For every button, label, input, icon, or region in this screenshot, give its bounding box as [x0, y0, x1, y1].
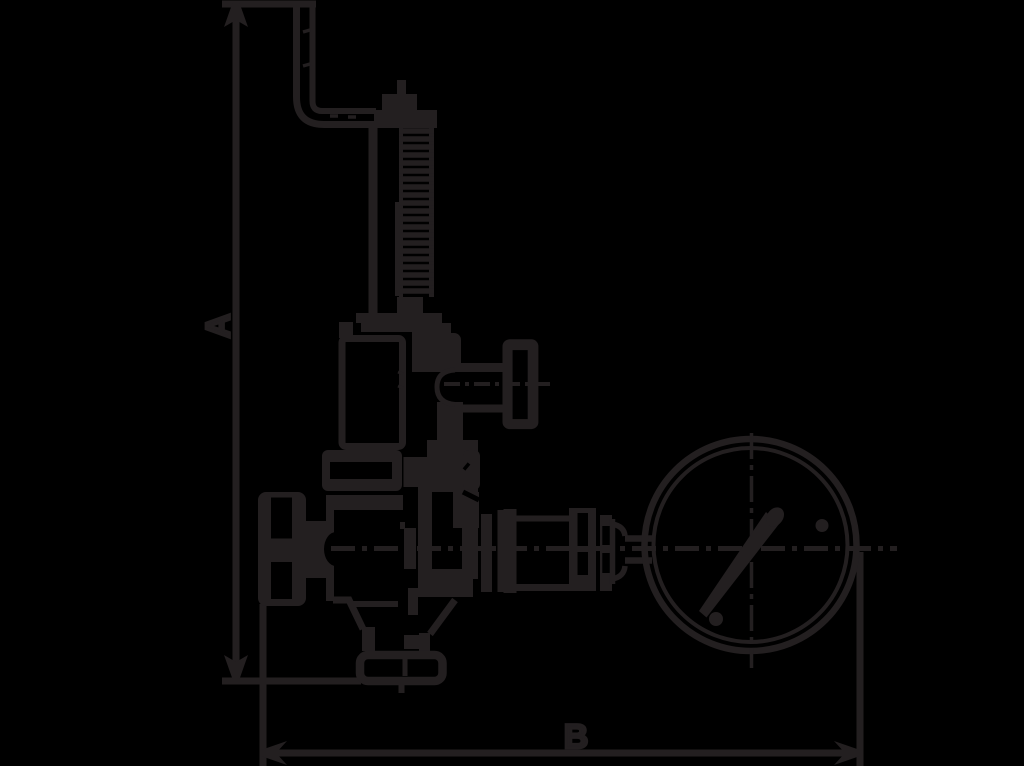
svg-text:A: A: [200, 314, 238, 339]
svg-text:B: B: [564, 718, 589, 756]
